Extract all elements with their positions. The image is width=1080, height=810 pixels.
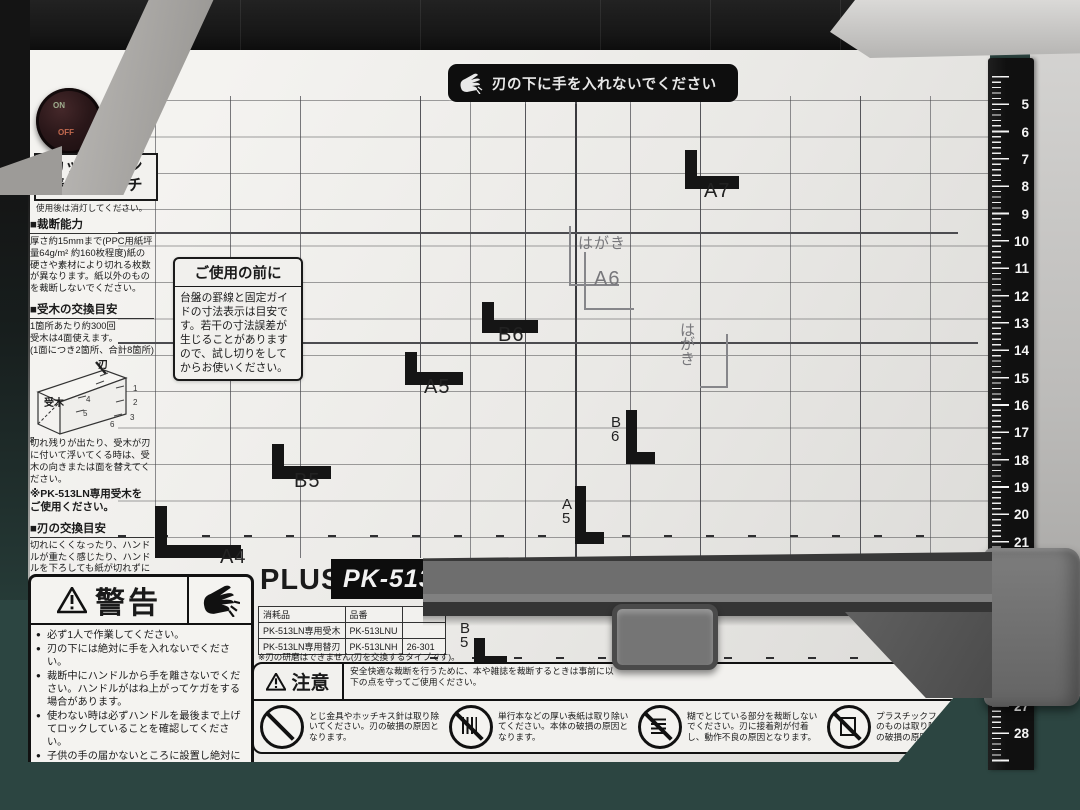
blade-title: ■刃の交換目安 (30, 520, 154, 538)
capacity-body: 厚さ約15mmまで(PPC用紙坪量64g/m² 約160枚程度)紙の硬さや素材に… (30, 236, 154, 295)
ruler-number: 6 (1014, 118, 1029, 145)
ruler-number: 12 (1014, 282, 1029, 309)
size-label-b5-bottom: B 5 (460, 622, 470, 651)
warning-title-cell: 警告 (31, 577, 189, 623)
caution-item: とじ金具やホッチキス針は取り除いてください。刃の破損の原因となります。 (260, 705, 441, 749)
caution-item: 単行本などの厚い表紙は取り除いてください。本体の破損の原因となります。 (449, 705, 630, 749)
parts-header-code: 品番 (345, 607, 402, 623)
safety-banner-text: 刃の下に手を入れないでください (492, 73, 717, 94)
hand-warning-icon (200, 583, 240, 617)
grid-line (118, 232, 958, 234)
face-number: 5 (83, 409, 87, 418)
switch-on-label: ON (53, 101, 65, 110)
ukigi-note2: ※PK-513LN専用受木を ご使用ください。 (30, 488, 154, 514)
parts-table-body: PK-513LN専用受木 PK-513LNU PK-513LN専用替刃 PK-5… (259, 623, 446, 655)
warning-item: 裁断中にハンドルから手を離さないでください。ハンドルがはね上がってケガをする場合… (36, 670, 246, 709)
ruler-number: 9 (1014, 200, 1029, 227)
ruler-number: 13 (1014, 310, 1029, 337)
caution-intro: 安全快適な裁断を行うために、本や雑誌を裁断するときは事前に以下の点を守ってご使用… (344, 664, 626, 699)
ruler-slider-block (984, 548, 1080, 706)
parts-header-name: 消耗品 (259, 607, 346, 623)
face-number: 3 (130, 413, 134, 422)
ruler-number: 15 (1014, 364, 1029, 391)
ukigi-label: 受木 (44, 394, 64, 409)
warning-title: 警告 (95, 578, 161, 622)
warning-item: 刃の下には絶対に手を入れないでください。 (36, 643, 246, 669)
machine-arm-right (830, 0, 1080, 58)
parts-header-row: 消耗品 品番 (259, 607, 446, 623)
ukigi-diagram: 刃 受木 12345678 (30, 358, 154, 436)
caution-item: 糊でとじている部分を裁断しないでください。刃に接着剤が付着し、動作不良の原因とな… (638, 705, 819, 749)
ruler-number: 7 (1014, 146, 1029, 173)
ukigi-note: 切れ残りが出たり、受木が刃に付いて浮いてくる時は、受木の向きまたは面を替えてくだ… (30, 438, 154, 485)
ruler-number: 10 (1014, 228, 1029, 255)
caution-item-text: 糊でとじている部分を裁断しないでください。刃に接着剤が付着し、動作不良の原因とな… (687, 711, 819, 743)
caution-strip: 注意 安全快適な裁断を行うために、本や雑誌を裁断するときは事前に以下の点を守って… (252, 662, 993, 754)
switch-off-label: OFF (58, 128, 74, 137)
size-label-a4: A4 (220, 546, 246, 569)
warning-hand-cell (189, 577, 251, 623)
warning-triangle-icon (57, 587, 87, 614)
hand-warning-icon (458, 72, 484, 94)
caution-item-text: 単行本などの厚い表紙は取り除いてください。本体の破損の原因となります。 (498, 711, 630, 743)
part-code: PK-513LNU (345, 623, 402, 639)
blade-label: 刃 (98, 356, 108, 371)
ruler-number: 11 (1014, 255, 1029, 282)
caution-title: 注意 (291, 668, 329, 695)
warning-item: 使わない時は必ずハンドルを最後まで上げてロックしていることを確認してください。 (36, 710, 246, 749)
ruler-number: 14 (1014, 337, 1029, 364)
before-use-box: ご使用の前に 台盤の罫線と固定ガイドの寸法表示は目安です。若干の寸法誤差が生じる… (173, 257, 303, 381)
machine-seam (600, 0, 601, 50)
no-plastic-film-icon (827, 705, 871, 749)
before-use-title: ご使用の前に (175, 259, 301, 287)
ruler-number: 8 (1014, 173, 1029, 200)
cutting-board: 刃の下に手を入れないでください ON OFF 点灯 消灯 カットライン 表示スイ… (28, 46, 990, 762)
machine-seam (240, 0, 241, 50)
parts-row: PK-513LN専用受木 PK-513LNU (259, 623, 446, 639)
caution-triangle-icon (266, 673, 286, 691)
machine-seam (420, 0, 421, 50)
ukigi-title: ■受木の交換目安 (30, 301, 154, 319)
face-number: 2 (133, 398, 137, 407)
ruler-number: 5 (1014, 91, 1029, 118)
ruler-number: 18 (1014, 446, 1029, 473)
size-mark-b6-vertical (626, 410, 655, 464)
face-number: 4 (86, 395, 90, 404)
size-bracket-hagaki-right (700, 334, 728, 388)
size-label-hagaki-vertical: は が き (680, 324, 695, 367)
size-label-b5: B5 (294, 470, 320, 493)
size-label-b6: B6 (498, 324, 524, 347)
ruler-number: 19 (1014, 474, 1029, 501)
face-number: 1 (133, 384, 137, 393)
size-label-b6-vertical: B 6 (611, 416, 621, 445)
clamp-handle (612, 604, 718, 670)
brand-logo: PLUS (260, 564, 341, 597)
ruler-number: 16 (1014, 392, 1029, 419)
no-staples-icon (260, 705, 304, 749)
warning-header: 警告 (31, 577, 251, 625)
caution-item-text: とじ金具やホッチキス針は取り除いてください。刃の破損の原因となります。 (309, 711, 441, 743)
paper-cutter-photo: 刃の下に手を入れないでください ON OFF 点灯 消灯 カットライン 表示スイ… (0, 0, 1080, 810)
no-thick-cover-icon (449, 705, 493, 749)
caution-title-cell: 注意 (254, 664, 344, 699)
caution-items: とじ金具やホッチキス針は取り除いてください。刃の破損の原因となります。 単行本な… (254, 701, 991, 752)
ukigi-body: 1箇所あたり約300回 受木は4面使えます。 (1面につき2箇所、合計8箇所) (30, 321, 154, 356)
part-name: PK-513LN専用受木 (259, 623, 346, 639)
ruler-number: 20 (1014, 501, 1029, 528)
machine-seam (710, 0, 711, 50)
grid-dash-line (118, 535, 948, 537)
face-number: 6 (110, 420, 114, 429)
parts-table: 消耗品 品番 PK-513LN専用受木 PK-513LNU PK-513LN専用… (258, 606, 446, 655)
ruler-number: 28 (1014, 720, 1029, 747)
size-label-a7: A7 (704, 180, 730, 203)
ruler-number: 17 (1014, 419, 1029, 446)
size-label-hagaki: はがき (578, 232, 626, 253)
machine-left-edge (0, 0, 30, 600)
size-label-a5: A5 (424, 376, 450, 399)
size-mark-a5-vertical (575, 486, 604, 544)
warning-item: 必ず1人で作業してください。 (36, 629, 246, 642)
safety-banner: 刃の下に手を入れないでください (448, 64, 738, 102)
size-label-a5-vertical: A 5 (562, 498, 572, 527)
size-label-a6: A6 (594, 268, 620, 291)
face-number: 8 (30, 436, 34, 445)
no-glue-binding-icon (638, 705, 682, 749)
capacity-title: ■裁断能力 (30, 216, 154, 234)
before-use-body: 台盤の罫線と固定ガイドの寸法表示は目安です。若干の寸法誤差が生じることがあります… (175, 287, 301, 379)
